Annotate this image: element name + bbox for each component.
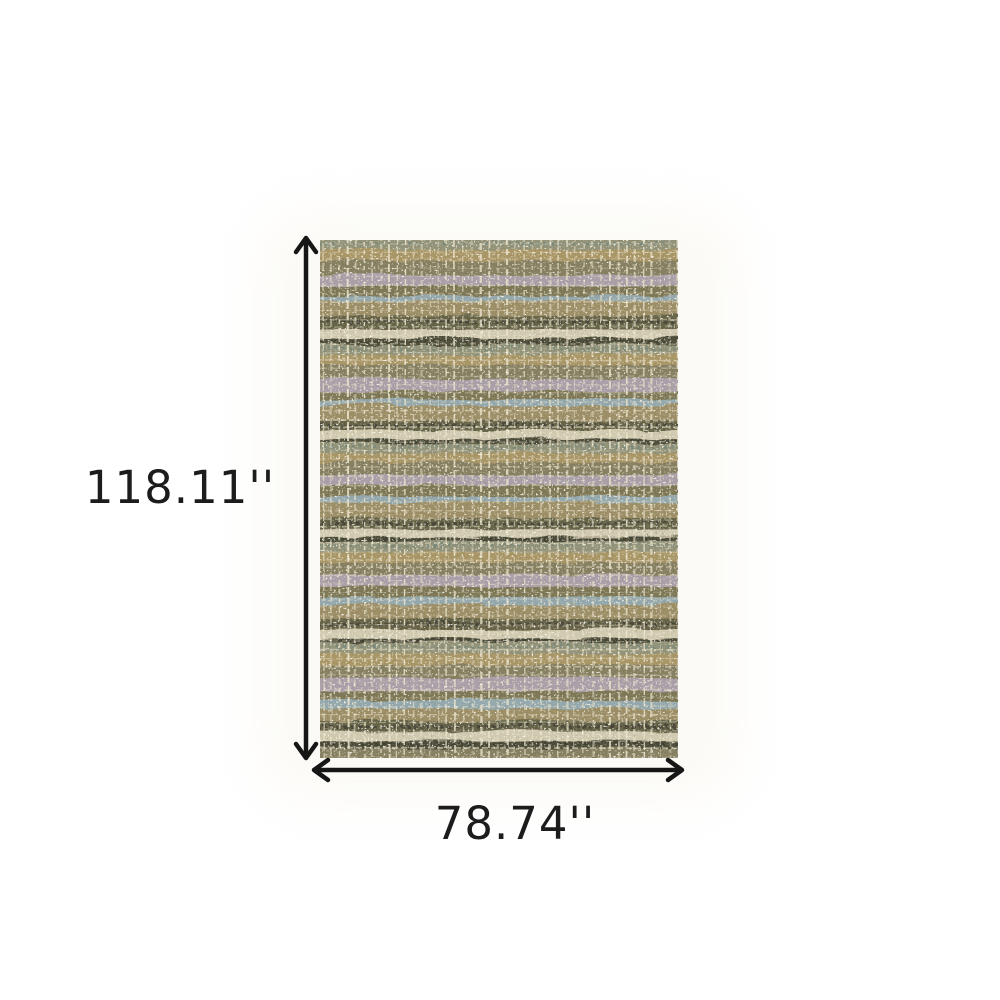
height-dimension-label: 118.11'': [40, 461, 320, 514]
width-dimension-label: 78.74'': [318, 797, 712, 850]
product-dimension-diagram: 118.11'' 78.74'': [0, 0, 1000, 1000]
width-dimension-arrow: [306, 752, 690, 788]
rug-image: [320, 240, 678, 758]
